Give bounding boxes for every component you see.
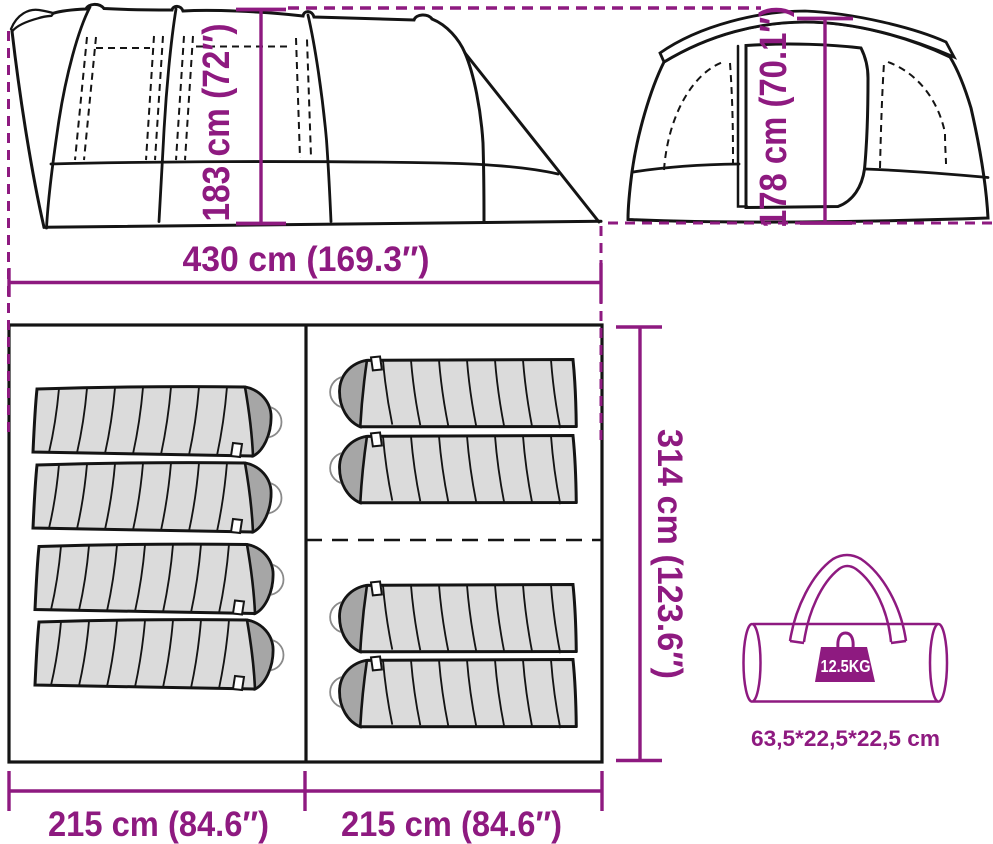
svg-text:215 cm (84.6″): 215 cm (84.6″) bbox=[48, 805, 269, 844]
svg-text:215 cm (84.6″): 215 cm (84.6″) bbox=[341, 805, 562, 844]
svg-text:183 cm (72″): 183 cm (72″) bbox=[196, 24, 238, 222]
svg-text:63,5*22,5*22,5 cm: 63,5*22,5*22,5 cm bbox=[751, 726, 940, 751]
svg-text:314 cm (123.6″): 314 cm (123.6″) bbox=[650, 429, 689, 679]
svg-text:178 cm (70.1″): 178 cm (70.1″) bbox=[753, 6, 795, 228]
svg-text:430 cm (169.3″): 430 cm (169.3″) bbox=[183, 240, 430, 279]
svg-text:12.5KG: 12.5KG bbox=[821, 656, 871, 676]
